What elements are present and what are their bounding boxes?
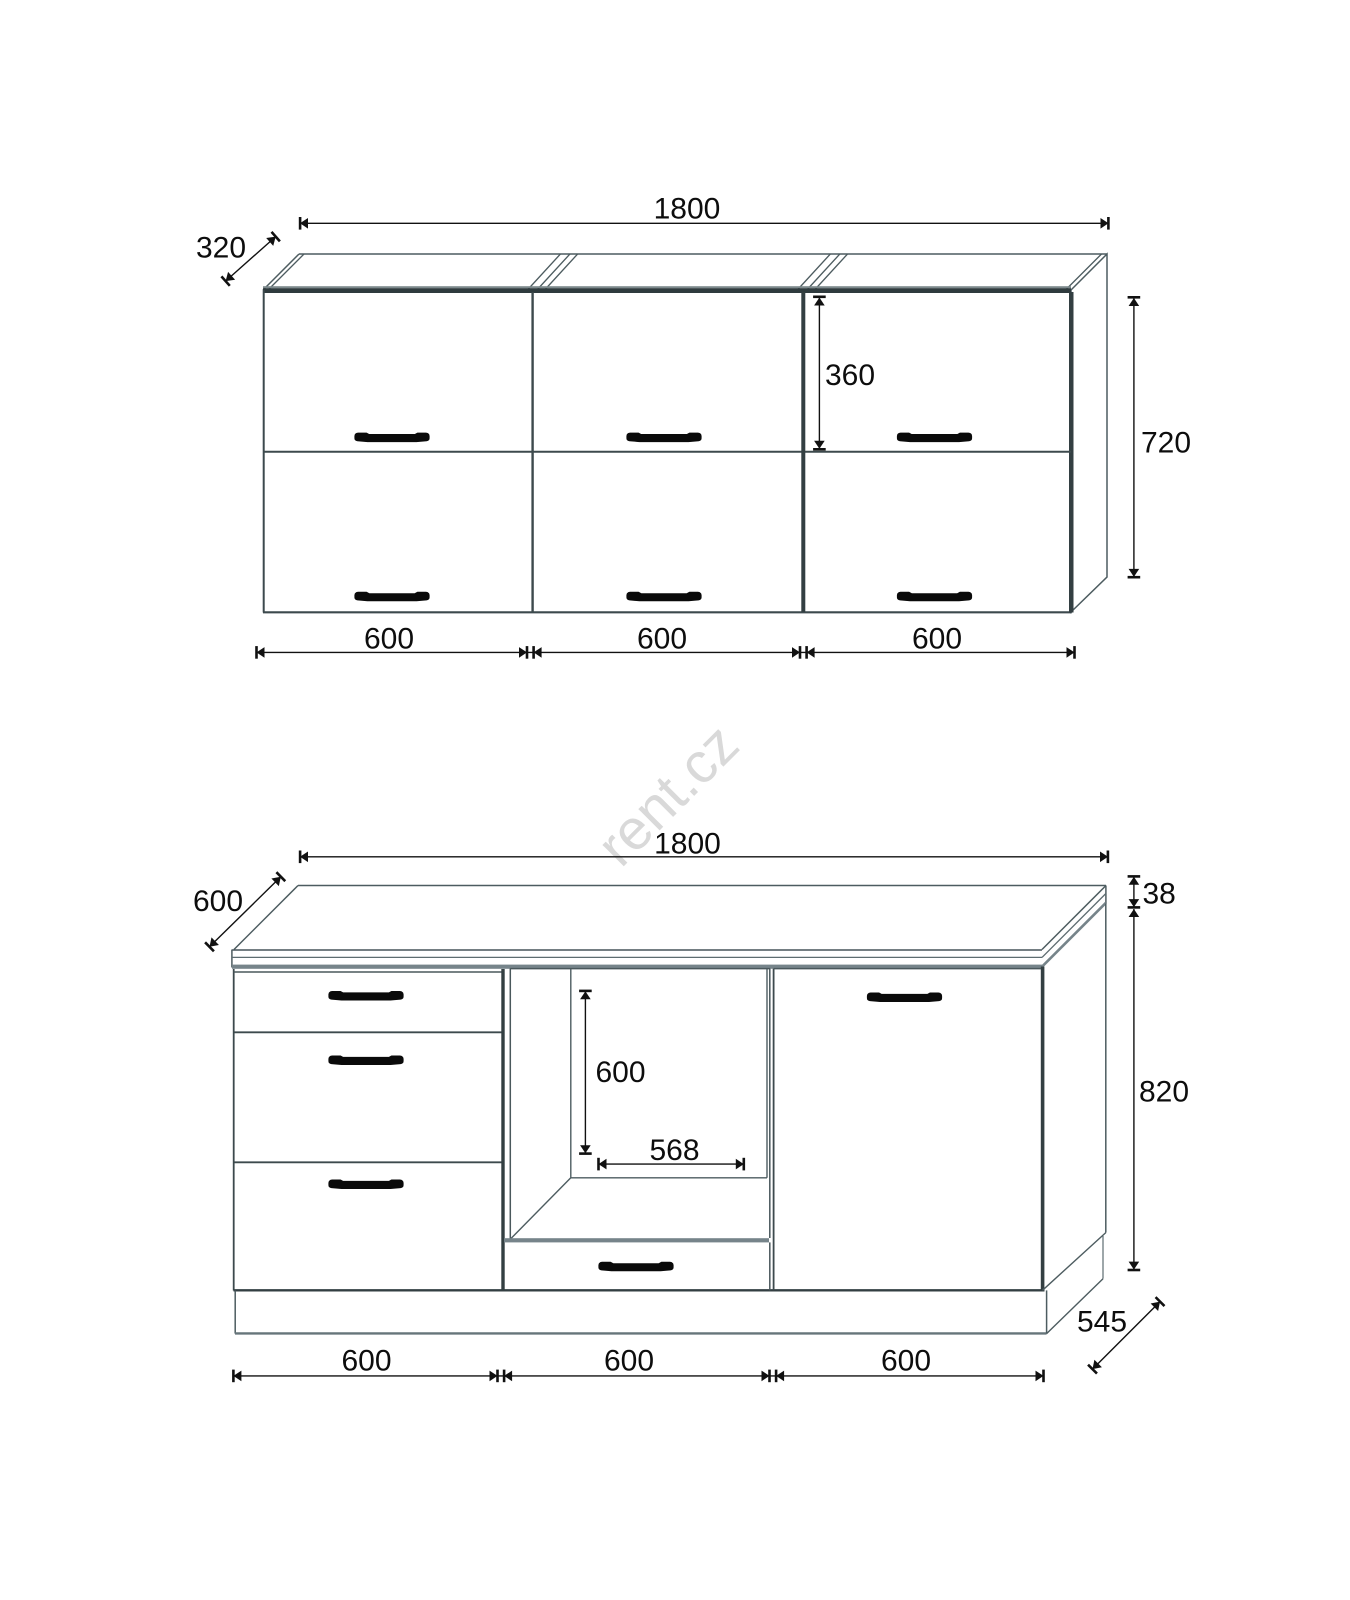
svg-text:600: 600 (364, 623, 414, 656)
svg-text:820: 820 (1139, 1076, 1189, 1109)
svg-text:568: 568 (649, 1134, 699, 1167)
svg-text:600: 600 (881, 1344, 931, 1377)
svg-text:1800: 1800 (654, 193, 721, 226)
svg-text:600: 600 (604, 1344, 654, 1377)
svg-text:720: 720 (1141, 427, 1191, 460)
svg-text:600: 600 (596, 1056, 646, 1089)
svg-text:600: 600 (637, 623, 687, 656)
svg-text:600: 600 (341, 1344, 391, 1377)
svg-text:360: 360 (825, 359, 875, 392)
svg-text:600: 600 (193, 885, 243, 918)
svg-text:38: 38 (1143, 877, 1176, 910)
svg-text:600: 600 (912, 623, 962, 656)
svg-text:1800: 1800 (654, 827, 721, 860)
svg-text:320: 320 (196, 231, 246, 264)
svg-text:545: 545 (1077, 1306, 1127, 1339)
